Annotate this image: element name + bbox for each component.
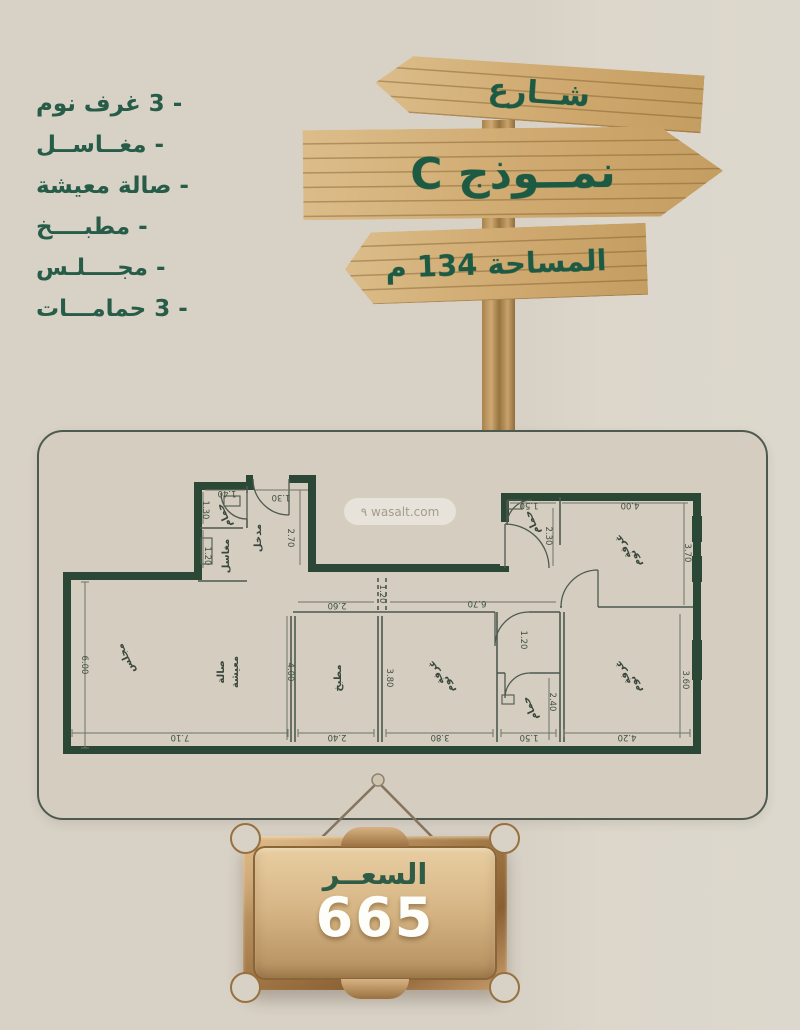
plaque-corner-ornament bbox=[230, 972, 261, 1003]
poster: - 3 غرف نوم - مغــاســل - صالة معيشة - م… bbox=[0, 0, 800, 1030]
feature-item: - 3 حمامـــات bbox=[36, 289, 276, 330]
svg-text:3.70: 3.70 bbox=[682, 544, 692, 563]
svg-text:3.60: 3.60 bbox=[680, 671, 690, 690]
svg-text:4.20: 4.20 bbox=[618, 732, 637, 742]
svg-text:حمام: حمام bbox=[522, 509, 543, 536]
floorplan-card: 7.10 2.40 3.80 1.50 4.20 6.00 4.00 3.80 … bbox=[37, 430, 768, 820]
price-value: 665 bbox=[316, 891, 435, 945]
svg-text:مجلس: مجلس bbox=[115, 642, 138, 675]
svg-text:معيشة: معيشة bbox=[230, 656, 241, 688]
svg-text:1.40: 1.40 bbox=[218, 488, 237, 498]
svg-text:مغاسل: مغاسل bbox=[221, 539, 232, 573]
svg-text:2.30: 2.30 bbox=[543, 527, 553, 546]
svg-text:1.30: 1.30 bbox=[200, 501, 210, 520]
svg-text:1.20: 1.20 bbox=[518, 631, 528, 650]
nail-icon bbox=[372, 774, 384, 786]
sign-board-model: نمــوذج C bbox=[303, 126, 724, 220]
svg-text:3.80: 3.80 bbox=[384, 669, 394, 688]
dimension-lines bbox=[72, 490, 690, 748]
svg-text:2.70: 2.70 bbox=[285, 529, 295, 548]
feature-item: - صالة معيشة bbox=[36, 166, 276, 207]
sign-model-label: نمــوذج C bbox=[410, 146, 616, 199]
feature-item: - مجــــلـس bbox=[36, 248, 276, 289]
svg-text:4.00: 4.00 bbox=[285, 663, 295, 682]
svg-text:2.40: 2.40 bbox=[328, 732, 347, 742]
svg-text:1.20: 1.20 bbox=[202, 547, 212, 566]
plaque-corner-ornament bbox=[230, 823, 261, 854]
plaque-plate: السعــر 665 bbox=[253, 846, 497, 980]
svg-text:6.00: 6.00 bbox=[79, 656, 89, 675]
watermark-text: wasalt.com ٩ bbox=[361, 505, 440, 519]
svg-text:3.80: 3.80 bbox=[431, 732, 450, 742]
svg-text:2.40: 2.40 bbox=[547, 693, 557, 712]
svg-text:1.50: 1.50 bbox=[520, 732, 539, 742]
feature-item: - 3 غرف نوم bbox=[36, 84, 276, 125]
svg-text:7.10: 7.10 bbox=[171, 732, 190, 742]
svg-text:6.70: 6.70 bbox=[468, 598, 487, 608]
plaque-top-ornament bbox=[341, 827, 409, 847]
sign-area-label: المساحة 134 م bbox=[385, 243, 607, 285]
plaque-corner-ornament bbox=[489, 972, 520, 1003]
svg-text:1.30: 1.30 bbox=[272, 492, 291, 502]
svg-text:مطبخ: مطبخ bbox=[333, 664, 344, 691]
feature-item: - مغــاســل bbox=[36, 125, 276, 166]
svg-text:1.20: 1.20 bbox=[377, 585, 387, 604]
dimension-labels: 7.10 2.40 3.80 1.50 4.20 6.00 4.00 3.80 … bbox=[79, 488, 692, 742]
plaque-bottom-ornament bbox=[341, 979, 409, 999]
features-list: - 3 غرف نوم - مغــاســل - صالة معيشة - م… bbox=[36, 84, 276, 330]
watermark-badge: wasalt.com ٩ bbox=[344, 498, 456, 525]
feature-item: - مطبــــخ bbox=[36, 207, 276, 248]
sign-board-street: شــارع bbox=[373, 53, 704, 134]
svg-text:4.00: 4.00 bbox=[621, 500, 640, 510]
plaque-corner-ornament bbox=[489, 823, 520, 854]
svg-text:مدخل: مدخل bbox=[253, 524, 264, 552]
svg-text:حمام: حمام bbox=[520, 695, 541, 722]
svg-text:1.50: 1.50 bbox=[520, 500, 539, 510]
sign-board-area: المساحة 134 م bbox=[344, 223, 648, 305]
price-plaque: السعــر 665 bbox=[243, 836, 507, 990]
floorplan-drawing: 7.10 2.40 3.80 1.50 4.20 6.00 4.00 3.80 … bbox=[37, 430, 764, 816]
svg-text:2.60: 2.60 bbox=[328, 600, 347, 610]
sign-street-label: شــارع bbox=[487, 71, 592, 114]
svg-text:صالة: صالة bbox=[216, 660, 227, 683]
